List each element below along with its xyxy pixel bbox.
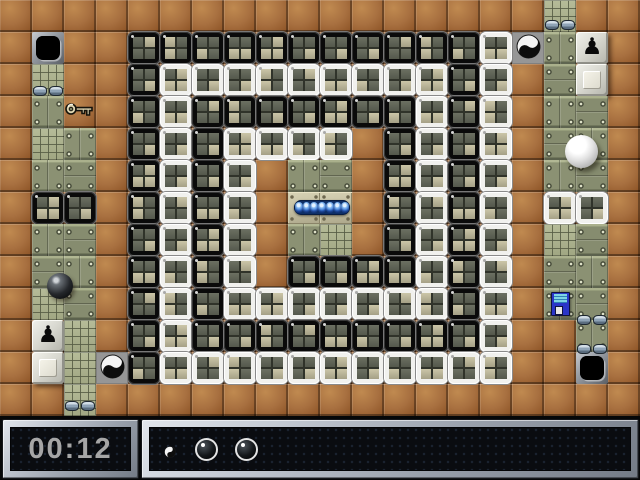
stone-facet: [177, 69, 187, 79]
stone-facet: [465, 337, 475, 347]
black-stone[interactable]: [384, 320, 416, 352]
stone-facet: [273, 325, 283, 335]
stone-face: [133, 229, 155, 251]
white-stone[interactable]: [224, 256, 256, 288]
black-stone[interactable]: [128, 320, 160, 352]
black-stone[interactable]: [448, 32, 480, 64]
stone-facet: [433, 337, 443, 347]
stone-facet: [165, 165, 175, 175]
stone-highlight: [227, 323, 230, 326]
stone-facet: [197, 177, 207, 187]
stone-face: [325, 293, 347, 315]
stone-facet: [401, 81, 411, 91]
stone-highlight: [131, 291, 134, 294]
black-stone[interactable]: [352, 320, 384, 352]
stone-highlight: [451, 35, 454, 38]
stone-face: [133, 133, 155, 155]
white-stone[interactable]: [416, 160, 448, 192]
stone-facet: [453, 229, 463, 239]
white-stone[interactable]: [160, 352, 192, 384]
black-stone[interactable]: [192, 128, 224, 160]
white-stone[interactable]: [256, 352, 288, 384]
stone-facet: [133, 177, 143, 187]
stone-facet: [421, 261, 431, 271]
black-stone[interactable]: [352, 96, 384, 128]
white-stone[interactable]: [320, 64, 352, 96]
stone-facet: [229, 337, 239, 347]
black-stone[interactable]: [256, 320, 288, 352]
black-stone[interactable]: [224, 32, 256, 64]
white-stone[interactable]: [160, 224, 192, 256]
black-stone[interactable]: [128, 160, 160, 192]
stone-face: [261, 101, 283, 123]
black-stone[interactable]: [32, 192, 64, 224]
stone-face: [197, 229, 219, 251]
stone-facet: [389, 357, 399, 367]
stone-face: [325, 69, 347, 91]
black-stone[interactable]: [416, 32, 448, 64]
white-stone[interactable]: [448, 352, 480, 384]
inventory-item-yin-yang[interactable]: [164, 443, 176, 462]
pawn-icon: ♟: [576, 32, 608, 62]
stone-facet: [145, 369, 155, 379]
white-stone[interactable]: [288, 352, 320, 384]
white-marble[interactable]: [565, 135, 598, 168]
stone-highlight: [483, 259, 486, 262]
stone-highlight: [227, 355, 230, 358]
black-stone[interactable]: [160, 32, 192, 64]
stone-face: [421, 261, 443, 283]
white-stone[interactable]: [256, 288, 288, 320]
metal-floor: [288, 160, 320, 192]
stone-highlight: [355, 67, 358, 70]
white-stone[interactable]: [416, 224, 448, 256]
white-stone[interactable]: [160, 192, 192, 224]
white-stone[interactable]: [480, 64, 512, 96]
stone-facet: [261, 305, 271, 315]
stone-facet: [421, 305, 431, 315]
white-stone[interactable]: [352, 64, 384, 96]
white-stone[interactable]: [320, 128, 352, 160]
white-stone[interactable]: [224, 352, 256, 384]
white-stone[interactable]: [224, 64, 256, 96]
stone-facet: [433, 273, 443, 283]
white-stone[interactable]: [192, 352, 224, 384]
white-stone[interactable]: [480, 288, 512, 320]
stone-face: [421, 165, 443, 187]
white-stone[interactable]: [224, 192, 256, 224]
stone-facet: [209, 101, 219, 111]
white-stone[interactable]: [352, 288, 384, 320]
stone-facet: [273, 113, 283, 123]
stone-facet: [465, 133, 475, 143]
white-stone[interactable]: [384, 64, 416, 96]
white-stone[interactable]: [224, 224, 256, 256]
white-stone[interactable]: [480, 352, 512, 384]
inventory-item-marble[interactable]: [195, 438, 218, 461]
stone-facet: [401, 177, 411, 187]
blue-pill-item[interactable]: [294, 200, 350, 215]
stone-highlight: [387, 291, 390, 294]
stone-facet: [421, 325, 431, 335]
pawn-button[interactable]: ♟: [32, 320, 64, 352]
black-stone[interactable]: [192, 320, 224, 352]
stone-facet: [81, 197, 91, 207]
black-stone[interactable]: [192, 96, 224, 128]
blank-button[interactable]: [576, 64, 608, 96]
stone-facet: [133, 293, 143, 303]
black-stone[interactable]: [256, 32, 288, 64]
stone-highlight: [387, 323, 390, 326]
black-stone[interactable]: [192, 256, 224, 288]
stone-facet: [273, 81, 283, 91]
stone-facet: [165, 293, 175, 303]
stone-face: [165, 229, 187, 251]
metal-floor: [32, 224, 64, 256]
blank-button[interactable]: [32, 352, 64, 384]
stone-facet: [197, 369, 207, 379]
black-stone[interactable]: [448, 160, 480, 192]
black-stone[interactable]: [128, 352, 160, 384]
black-stone[interactable]: [448, 256, 480, 288]
stone-facet: [465, 101, 475, 111]
stone-facet: [337, 369, 347, 379]
black-stone[interactable]: [288, 320, 320, 352]
stone-facet: [133, 113, 143, 123]
white-stone[interactable]: [224, 160, 256, 192]
white-stone[interactable]: [160, 256, 192, 288]
stone-facet: [497, 69, 507, 79]
black-stone[interactable]: [448, 96, 480, 128]
stone-facet: [133, 37, 143, 47]
stone-face: [549, 197, 571, 219]
grid-floor: [32, 128, 64, 160]
stone-facet: [229, 261, 239, 271]
stone-face: [325, 357, 347, 379]
black-stone[interactable]: [384, 256, 416, 288]
stone-facet: [305, 325, 315, 335]
stone-facet: [325, 113, 335, 123]
white-stone[interactable]: [544, 192, 576, 224]
black-stone[interactable]: [448, 320, 480, 352]
key-item[interactable]: [64, 99, 94, 123]
white-stone[interactable]: [256, 64, 288, 96]
stone-facet: [433, 369, 443, 379]
black-stone[interactable]: [320, 96, 352, 128]
stone-facet: [421, 145, 431, 155]
black-stone[interactable]: [384, 96, 416, 128]
white-stone[interactable]: [160, 128, 192, 160]
stone-facet: [337, 81, 347, 91]
stone-facet: [133, 69, 143, 79]
black-stone[interactable]: [384, 32, 416, 64]
white-stone[interactable]: [288, 64, 320, 96]
stone-facet: [229, 101, 239, 111]
stone-face: [389, 229, 411, 251]
stone-face: [485, 101, 507, 123]
stone-facet: [133, 357, 143, 367]
white-stone[interactable]: [384, 352, 416, 384]
stone-highlight: [291, 67, 294, 70]
stone-facet: [209, 293, 219, 303]
pawn-button[interactable]: ♟: [576, 32, 608, 64]
stone-facet: [165, 197, 175, 207]
black-stone[interactable]: [128, 256, 160, 288]
black-stone[interactable]: [352, 32, 384, 64]
stone-facet: [177, 113, 187, 123]
white-stone[interactable]: [160, 64, 192, 96]
stone-facet: [485, 337, 495, 347]
black-stone[interactable]: [64, 192, 96, 224]
stone-facet: [293, 357, 303, 367]
black-marble[interactable]: [47, 273, 73, 299]
stone-facet: [177, 101, 187, 111]
black-stone[interactable]: [224, 96, 256, 128]
black-stone[interactable]: [224, 320, 256, 352]
stone-face: [453, 37, 475, 59]
black-stone[interactable]: [128, 64, 160, 96]
white-stone[interactable]: [160, 320, 192, 352]
stone-facet: [497, 37, 507, 47]
stone-highlight: [163, 35, 166, 38]
stone-facet: [145, 305, 155, 315]
stone-facet: [433, 69, 443, 79]
black-stone[interactable]: [128, 224, 160, 256]
white-stone[interactable]: [480, 32, 512, 64]
black-stone[interactable]: [384, 224, 416, 256]
stone-facet: [197, 133, 207, 143]
black-stone[interactable]: [192, 224, 224, 256]
stone-facet: [177, 369, 187, 379]
stone-facet: [433, 229, 443, 239]
metal-floor: [32, 160, 64, 192]
white-stone[interactable]: [480, 320, 512, 352]
black-stone[interactable]: [288, 32, 320, 64]
stone-face: [261, 293, 283, 315]
stone-facet: [485, 113, 495, 123]
stone-highlight: [355, 99, 358, 102]
white-stone[interactable]: [288, 288, 320, 320]
stone-face: [389, 37, 411, 59]
white-stone[interactable]: [160, 288, 192, 320]
black-stone[interactable]: [384, 192, 416, 224]
black-stone[interactable]: [128, 128, 160, 160]
white-stone[interactable]: [480, 256, 512, 288]
stone-face: [165, 69, 187, 91]
stone-facet: [133, 133, 143, 143]
stone-highlight: [483, 163, 486, 166]
stone-highlight: [387, 99, 390, 102]
stone-highlight: [451, 291, 454, 294]
stone-face: [453, 197, 475, 219]
white-stone[interactable]: [480, 96, 512, 128]
metal-floor: [544, 96, 576, 128]
stone-highlight: [387, 131, 390, 134]
stone-face: [165, 261, 187, 283]
black-stone[interactable]: [448, 192, 480, 224]
stone-facet: [241, 337, 251, 347]
white-stone[interactable]: [288, 128, 320, 160]
stone-highlight: [163, 323, 166, 326]
metal-floor: [576, 96, 608, 128]
stone-facet: [209, 113, 219, 123]
white-stone[interactable]: [416, 352, 448, 384]
stone-facet: [197, 357, 207, 367]
black-stone[interactable]: [448, 224, 480, 256]
stone-highlight: [355, 35, 358, 38]
white-stone[interactable]: [480, 192, 512, 224]
white-stone[interactable]: [160, 96, 192, 128]
metal-floor: [288, 224, 320, 256]
stone-face: [229, 69, 251, 91]
stone-highlight: [419, 195, 422, 198]
black-stone[interactable]: [320, 32, 352, 64]
stone-facet: [389, 197, 399, 207]
stone-facet: [197, 305, 207, 315]
stone-facet: [209, 369, 219, 379]
stone-facet: [293, 101, 303, 111]
stone-highlight: [483, 67, 486, 70]
stone-facet: [209, 337, 219, 347]
stone-facet: [389, 81, 399, 91]
stone-facet: [293, 325, 303, 335]
black-stone[interactable]: [192, 32, 224, 64]
stone-facet: [433, 37, 443, 47]
black-stone[interactable]: [384, 160, 416, 192]
grid-floor: [64, 320, 96, 352]
stone-facet: [389, 113, 399, 123]
stone-highlight: [451, 259, 454, 262]
black-stone[interactable]: [256, 96, 288, 128]
white-stone[interactable]: [384, 288, 416, 320]
black-stone[interactable]: [448, 288, 480, 320]
white-stone[interactable]: [480, 128, 512, 160]
stone-highlight: [387, 259, 390, 262]
black-stone[interactable]: [448, 64, 480, 96]
black-stone[interactable]: [416, 320, 448, 352]
stone-facet: [465, 241, 475, 251]
stone-facet: [209, 241, 219, 251]
black-stone[interactable]: [192, 160, 224, 192]
white-stone[interactable]: [576, 192, 608, 224]
black-stone[interactable]: [352, 256, 384, 288]
white-stone[interactable]: [352, 352, 384, 384]
black-stone[interactable]: [384, 128, 416, 160]
floppy-disk-item[interactable]: [551, 292, 570, 316]
stone-facet: [133, 325, 143, 335]
black-stone[interactable]: [128, 32, 160, 64]
stone-facet: [145, 293, 155, 303]
black-stone[interactable]: [192, 192, 224, 224]
stone-face: [485, 37, 507, 59]
white-stone[interactable]: [224, 128, 256, 160]
white-stone[interactable]: [160, 160, 192, 192]
stone-highlight: [419, 131, 422, 134]
stone-facet: [69, 197, 79, 207]
stone-facet: [229, 113, 239, 123]
stone-highlight: [163, 227, 166, 230]
inventory-item-marble[interactable]: [235, 438, 258, 461]
stone-highlight: [291, 259, 294, 262]
stone-facet: [241, 357, 251, 367]
white-stone[interactable]: [416, 288, 448, 320]
white-stone[interactable]: [416, 64, 448, 96]
stone-facet: [421, 273, 431, 283]
white-stone[interactable]: [320, 288, 352, 320]
stone-facet: [497, 209, 507, 219]
stone-facet: [273, 145, 283, 155]
stone-facet: [133, 273, 143, 283]
stone-facet: [421, 101, 431, 111]
white-stone[interactable]: [480, 224, 512, 256]
stone-face: [293, 293, 315, 315]
black-stone[interactable]: [320, 320, 352, 352]
stone-facet: [401, 273, 411, 283]
black-stone[interactable]: [448, 128, 480, 160]
stone-face: [485, 357, 507, 379]
black-stone[interactable]: [192, 288, 224, 320]
black-stone[interactable]: [288, 256, 320, 288]
stone-face: [357, 293, 379, 315]
stone-facet: [485, 165, 495, 175]
black-stone[interactable]: [128, 192, 160, 224]
black-stone[interactable]: [288, 96, 320, 128]
stone-facet: [337, 49, 347, 59]
stone-highlight: [291, 99, 294, 102]
black-stone[interactable]: [128, 96, 160, 128]
stone-facet: [561, 197, 571, 207]
stone-facet: [497, 273, 507, 283]
stone-facet: [421, 49, 431, 59]
stone-highlight: [323, 67, 326, 70]
white-stone[interactable]: [416, 128, 448, 160]
stone-highlight: [227, 163, 230, 166]
white-stone[interactable]: [320, 352, 352, 384]
stone-highlight: [163, 99, 166, 102]
white-stone[interactable]: [256, 128, 288, 160]
stone-facet: [37, 197, 47, 207]
stone-facet: [401, 69, 411, 79]
black-stone[interactable]: [128, 288, 160, 320]
stone-facet: [229, 229, 239, 239]
stone-highlight: [259, 99, 262, 102]
stone-facet: [465, 369, 475, 379]
stone-facet: [133, 81, 143, 91]
stone-facet: [165, 37, 175, 47]
stone-facet: [293, 273, 303, 283]
white-stone[interactable]: [224, 288, 256, 320]
white-stone[interactable]: [480, 160, 512, 192]
timer-text: 00:12: [28, 433, 112, 466]
stone-facet: [197, 113, 207, 123]
stone-facet: [453, 133, 463, 143]
white-stone[interactable]: [192, 64, 224, 96]
stone-highlight: [195, 163, 198, 166]
stone-facet: [305, 261, 315, 271]
stone-face: [485, 325, 507, 347]
black-stone[interactable]: [320, 256, 352, 288]
white-stone[interactable]: [416, 96, 448, 128]
white-stone[interactable]: [416, 192, 448, 224]
white-stone[interactable]: [416, 256, 448, 288]
stone-facet: [465, 197, 475, 207]
stone-facet: [261, 357, 271, 367]
stone-highlight: [131, 163, 134, 166]
stone-facet: [241, 37, 251, 47]
stone-facet: [465, 69, 475, 79]
stone-facet: [497, 197, 507, 207]
stone-facet: [325, 81, 335, 91]
